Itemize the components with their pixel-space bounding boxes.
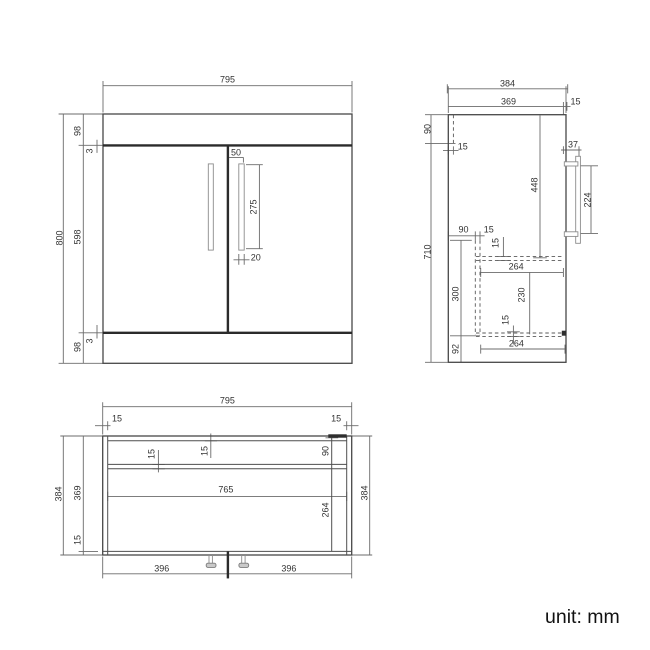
dim-side-drawer-height: 230 [517, 287, 526, 302]
dim-front-handle-length: 275 [250, 199, 259, 214]
dim-front-bottom-gap: 3 [86, 338, 95, 343]
dim-side-plinth-height: 92 [451, 344, 460, 354]
dim-side-handle-offset: 37 [568, 141, 578, 150]
dim-plan-right-panel: 15 [331, 415, 341, 424]
dim-front-top-rail: 98 [74, 125, 83, 135]
dim-plan-overall-depth-left: 384 [55, 487, 64, 502]
side-handle-bottom-bracket [564, 232, 578, 237]
dim-plan-interior-width: 765 [218, 485, 233, 494]
side-dimension-lines [425, 84, 598, 362]
dim-front-handle-offset: 50 [231, 148, 241, 157]
dim-plan-overall-width: 795 [220, 396, 235, 405]
dim-plan-leg-span-right: 396 [281, 564, 296, 573]
dim-side-shelf-setback: 90 [458, 225, 468, 234]
side-handle-top-bracket [564, 162, 578, 166]
dim-plan-overall-depth-right: 384 [361, 486, 370, 501]
dim-side-front-clearance: 15 [570, 98, 580, 107]
dim-plan-bottom-panel: 15 [74, 535, 83, 545]
dim-side-overall-height: 710 [423, 244, 432, 259]
side-handle-bar [576, 156, 581, 243]
dim-side-shelf-width: 264 [509, 263, 524, 272]
side-hidden-lines [453, 115, 564, 337]
dim-side-interior-height: 300 [451, 286, 460, 301]
right-door-handle [239, 164, 244, 250]
dim-front-overall-height: 800 [55, 230, 64, 245]
plan-dimension-lines [60, 402, 372, 578]
dim-plan-interior-depth: 264 [322, 503, 331, 518]
unit-label: unit: mm [545, 606, 620, 629]
dim-front-overall-width: 795 [220, 76, 235, 85]
dim-front-top-gap: 3 [86, 149, 95, 154]
dim-side-divider: 15 [484, 225, 494, 234]
dim-side-handle-length: 224 [583, 192, 592, 207]
plan-outline [103, 436, 352, 555]
plan-internal-panels [103, 436, 352, 555]
dim-side-bottom-thickness: 15 [502, 315, 511, 325]
dim-plan-left-panel: 15 [112, 415, 122, 424]
dim-side-overall-depth: 384 [500, 80, 515, 89]
dim-plan-carcass-depth: 369 [74, 485, 83, 500]
front-door-edges [103, 145, 352, 332]
dim-front-door-height: 598 [74, 229, 83, 244]
drawing-canvas [0, 0, 650, 650]
adjustable-foot-left [206, 563, 216, 567]
left-door-handle [208, 164, 213, 250]
plan-view [60, 402, 372, 578]
dim-plan-mid-panel: 15 [148, 449, 157, 459]
dim-front-bottom-rail: 98 [74, 342, 83, 352]
dim-side-back-panel: 15 [458, 142, 468, 151]
side-bottom-fixing-block [562, 331, 566, 336]
dim-plan-leg-span-left: 396 [154, 564, 169, 573]
dim-plan-back-panel: 15 [200, 446, 209, 456]
side-outline [448, 115, 566, 363]
adjustable-foot-right [239, 563, 249, 567]
dim-plan-rail-depth: 90 [322, 446, 331, 456]
front-view [59, 81, 352, 363]
dim-side-back-rail-height: 90 [423, 124, 432, 134]
dim-side-carcass-depth: 369 [501, 97, 516, 106]
side-view [425, 84, 598, 362]
dim-side-shelf-thickness: 15 [491, 238, 500, 248]
technical-drawing-page: 795 800 98 3 598 3 98 50 275 20 384 369 … [0, 0, 650, 650]
dim-side-bottom-width: 264 [509, 340, 524, 349]
dim-front-handle-width: 20 [251, 254, 261, 263]
dim-side-top-to-shelf: 448 [531, 177, 540, 192]
plan-hinge-plate [328, 434, 346, 437]
